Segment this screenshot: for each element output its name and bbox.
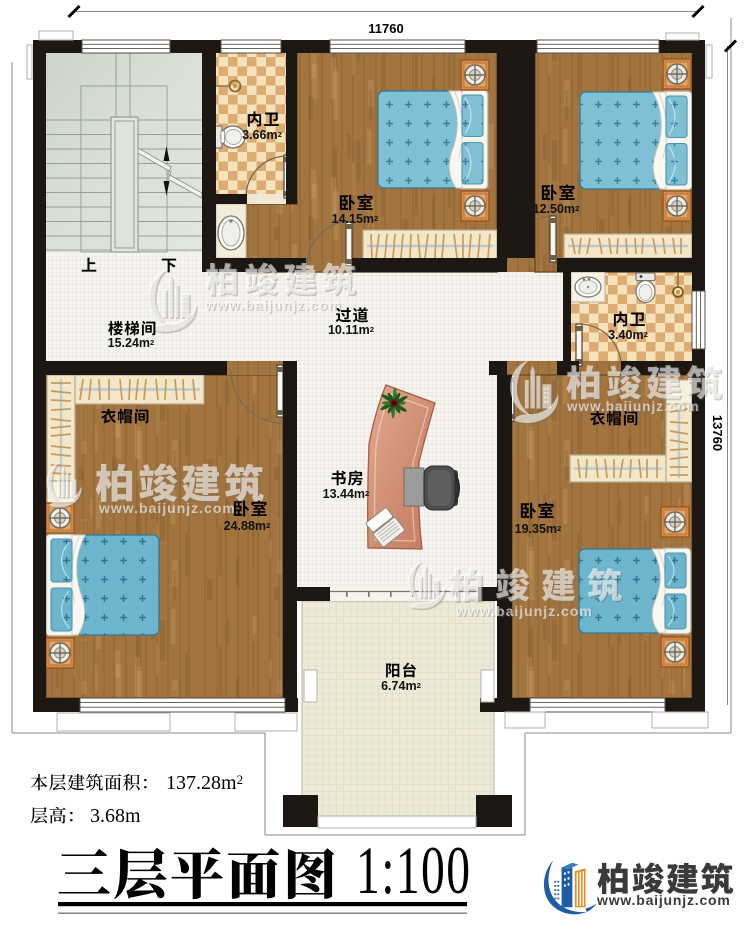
svg-text:10.11m2: 10.11m2 [328, 323, 374, 337]
svg-text:12.50m2: 12.50m2 [533, 202, 580, 216]
svg-text:3.40m2: 3.40m2 [608, 328, 648, 342]
svg-text:1:100: 1:100 [356, 833, 471, 908]
svg-text:137.28m2: 137.28m2 [166, 772, 243, 794]
svg-text:www.baijunjz.com: www.baijunjz.com [204, 297, 342, 313]
svg-text:13760: 13760 [710, 415, 725, 451]
svg-text:www.baijunjz.com: www.baijunjz.com [98, 500, 236, 516]
svg-text:11760: 11760 [368, 21, 403, 36]
svg-text:6.74m2: 6.74m2 [381, 679, 421, 693]
svg-text:3.66m2: 3.66m2 [242, 128, 282, 142]
svg-text:19.35m2: 19.35m2 [515, 522, 562, 536]
svg-text:3.68m: 3.68m [90, 805, 141, 827]
svg-text:14.15m2: 14.15m2 [332, 212, 379, 226]
svg-text:13.44m2: 13.44m2 [323, 487, 370, 501]
svg-text:15.24m2: 15.24m2 [108, 336, 155, 350]
svg-text:www.baijunjz.com: www.baijunjz.com [455, 603, 593, 619]
svg-text:www.baijunjz.com: www.baijunjz.com [596, 892, 731, 908]
svg-text:24.88m2: 24.88m2 [224, 519, 271, 533]
